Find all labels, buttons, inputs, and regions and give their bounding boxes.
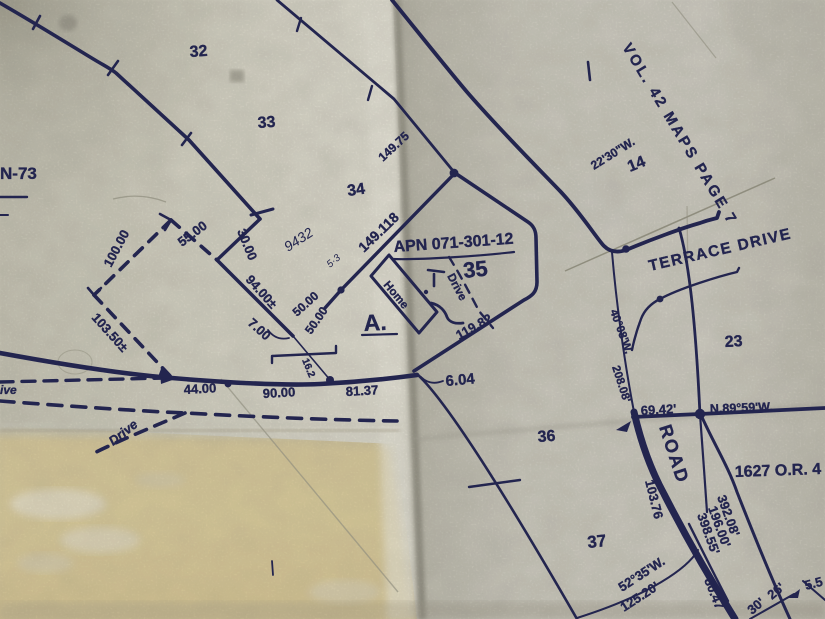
svg-text:34: 34: [346, 181, 366, 200]
svg-text:81.37: 81.37: [345, 382, 378, 399]
svg-text:N.89°59'W.: N.89°59'W.: [710, 400, 773, 416]
svg-text:A.: A.: [363, 309, 387, 336]
svg-text:35: 35: [462, 256, 489, 283]
svg-text:33: 33: [257, 114, 276, 132]
svg-text:1627 O.R. 4: 1627 O.R. 4: [735, 461, 822, 481]
svg-text:ive: ive: [0, 383, 17, 397]
svg-text:90.00: 90.00: [262, 384, 295, 401]
svg-text:N-73: N-73: [0, 164, 37, 183]
svg-text:69.42': 69.42': [640, 401, 676, 418]
svg-text:23: 23: [724, 333, 743, 351]
svg-text:32: 32: [189, 43, 208, 61]
svg-text:37: 37: [586, 531, 607, 552]
svg-text:6.04: 6.04: [445, 370, 476, 390]
svg-text:44.00: 44.00: [183, 380, 216, 397]
svg-text:36: 36: [537, 428, 556, 446]
